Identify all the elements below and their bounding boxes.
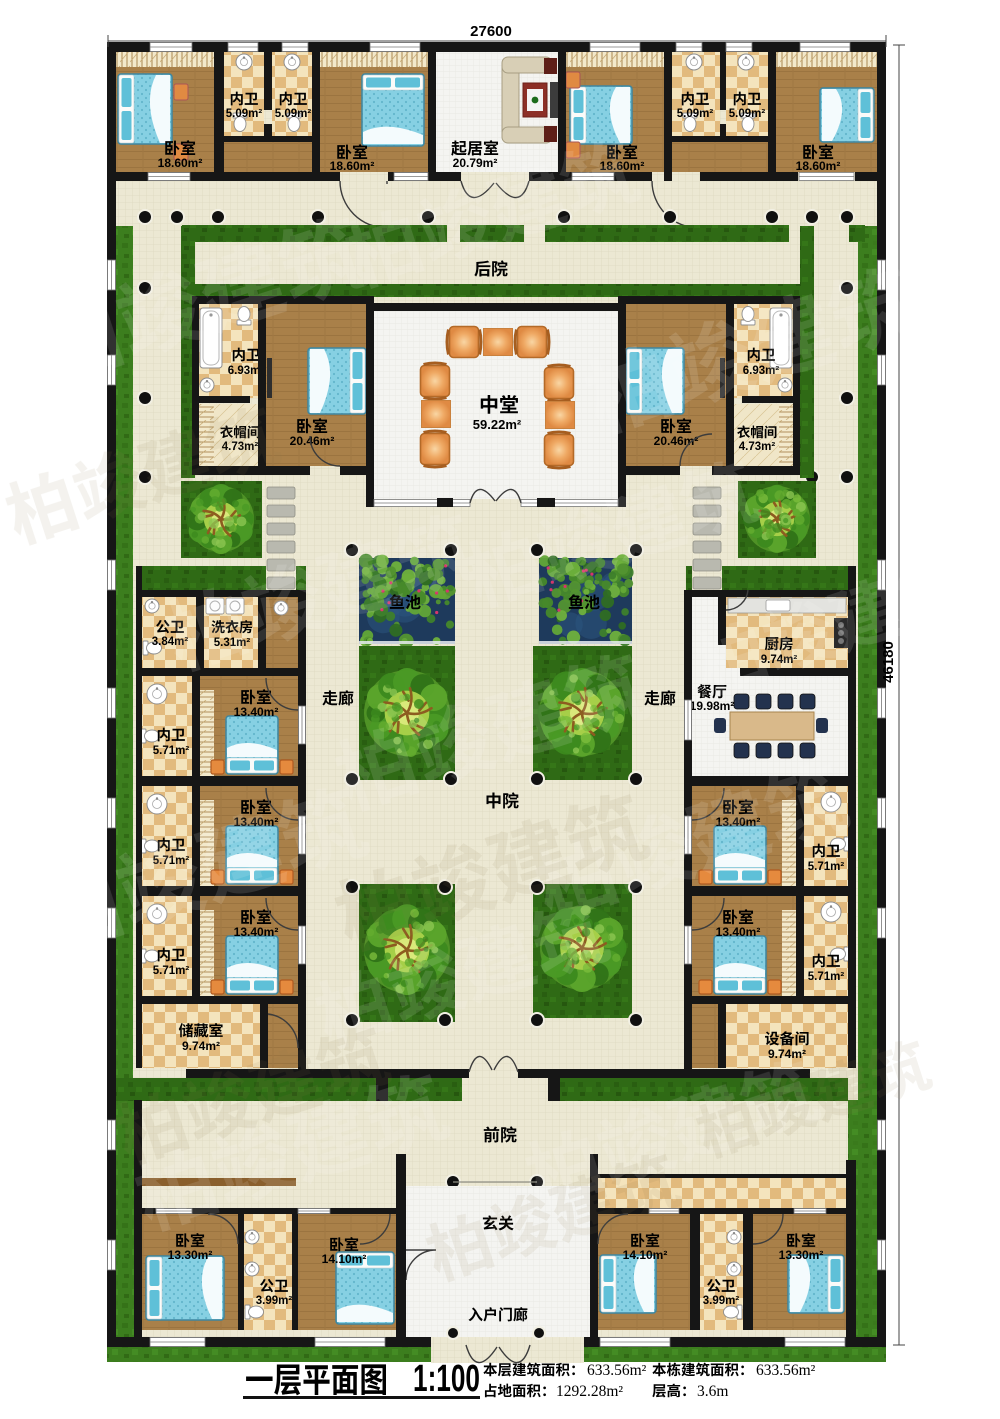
svg-text:633.56m²: 633.56m²: [587, 1362, 647, 1379]
svg-text:13.30m²: 13.30m²: [779, 1248, 824, 1262]
svg-text:13.30m²: 13.30m²: [168, 1248, 213, 1262]
svg-text:5.71m²: 5.71m²: [153, 965, 190, 977]
svg-text:14.10m²: 14.10m²: [623, 1248, 668, 1262]
svg-text:18.60m²: 18.60m²: [158, 156, 203, 170]
svg-text:5.09m²: 5.09m²: [729, 108, 766, 120]
svg-text:13.40m²: 13.40m²: [716, 925, 761, 939]
svg-text:5.09m²: 5.09m²: [677, 108, 714, 120]
svg-text:3.6m: 3.6m: [697, 1383, 728, 1400]
svg-text:3.99m²: 3.99m²: [703, 1295, 740, 1307]
svg-text:9.74m²: 9.74m²: [182, 1039, 220, 1053]
svg-text:19.98m²: 19.98m²: [690, 699, 735, 713]
svg-text:27600: 27600: [470, 23, 512, 40]
svg-text:14.10m²: 14.10m²: [322, 1252, 367, 1266]
svg-text:5.09m²: 5.09m²: [275, 108, 312, 120]
svg-text:5.09m²: 5.09m²: [226, 108, 263, 120]
svg-text:59.22m²: 59.22m²: [473, 417, 522, 432]
svg-text:3.99m²: 3.99m²: [256, 1295, 293, 1307]
svg-text:20.79m²: 20.79m²: [453, 156, 498, 170]
svg-text:633.56m²: 633.56m²: [756, 1362, 816, 1379]
svg-text:4.73m²: 4.73m²: [739, 441, 776, 453]
svg-text:1:100: 1:100: [413, 1358, 480, 1400]
svg-text:5.71m²: 5.71m²: [153, 745, 190, 757]
svg-text:46180: 46180: [880, 641, 897, 683]
svg-text:5.71m²: 5.71m²: [808, 971, 845, 983]
svg-text:18.60m²: 18.60m²: [796, 159, 841, 173]
svg-text:13.40m²: 13.40m²: [234, 705, 279, 719]
svg-text:13.40m²: 13.40m²: [234, 925, 279, 939]
svg-text:1292.28m²: 1292.28m²: [556, 1383, 623, 1400]
svg-text:9.74m²: 9.74m²: [768, 1047, 806, 1061]
svg-text:18.60m²: 18.60m²: [330, 159, 375, 173]
svg-text:5.71m²: 5.71m²: [808, 861, 845, 873]
